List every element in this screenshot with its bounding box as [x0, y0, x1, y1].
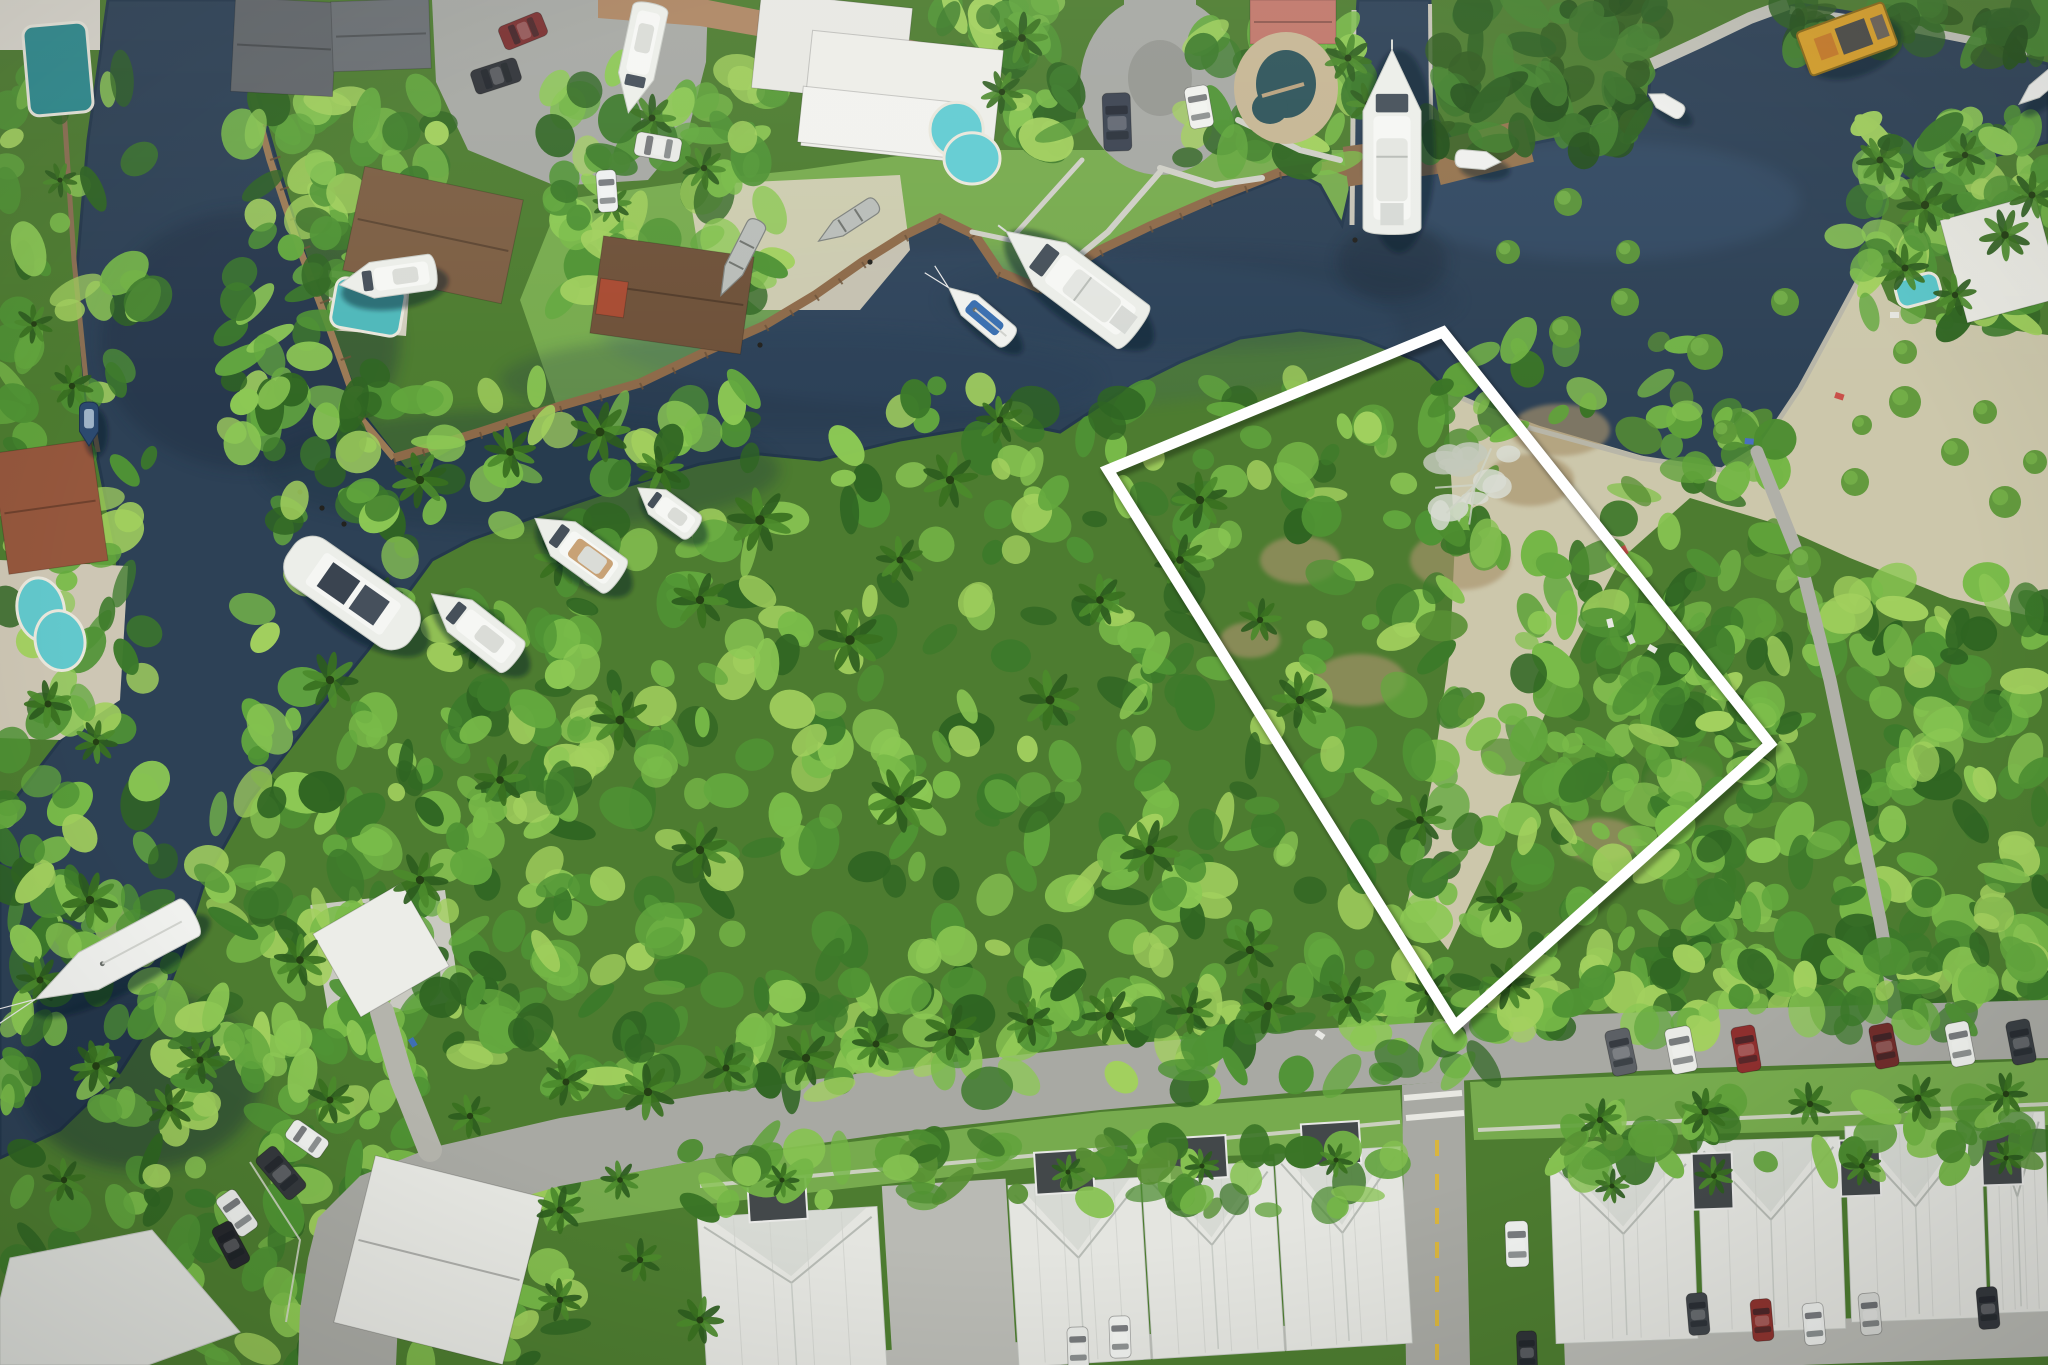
aerial-photo-canvas — [0, 0, 2048, 1365]
haze-overlay — [0, 0, 2048, 1365]
aerial-property-photo — [0, 0, 2048, 1365]
